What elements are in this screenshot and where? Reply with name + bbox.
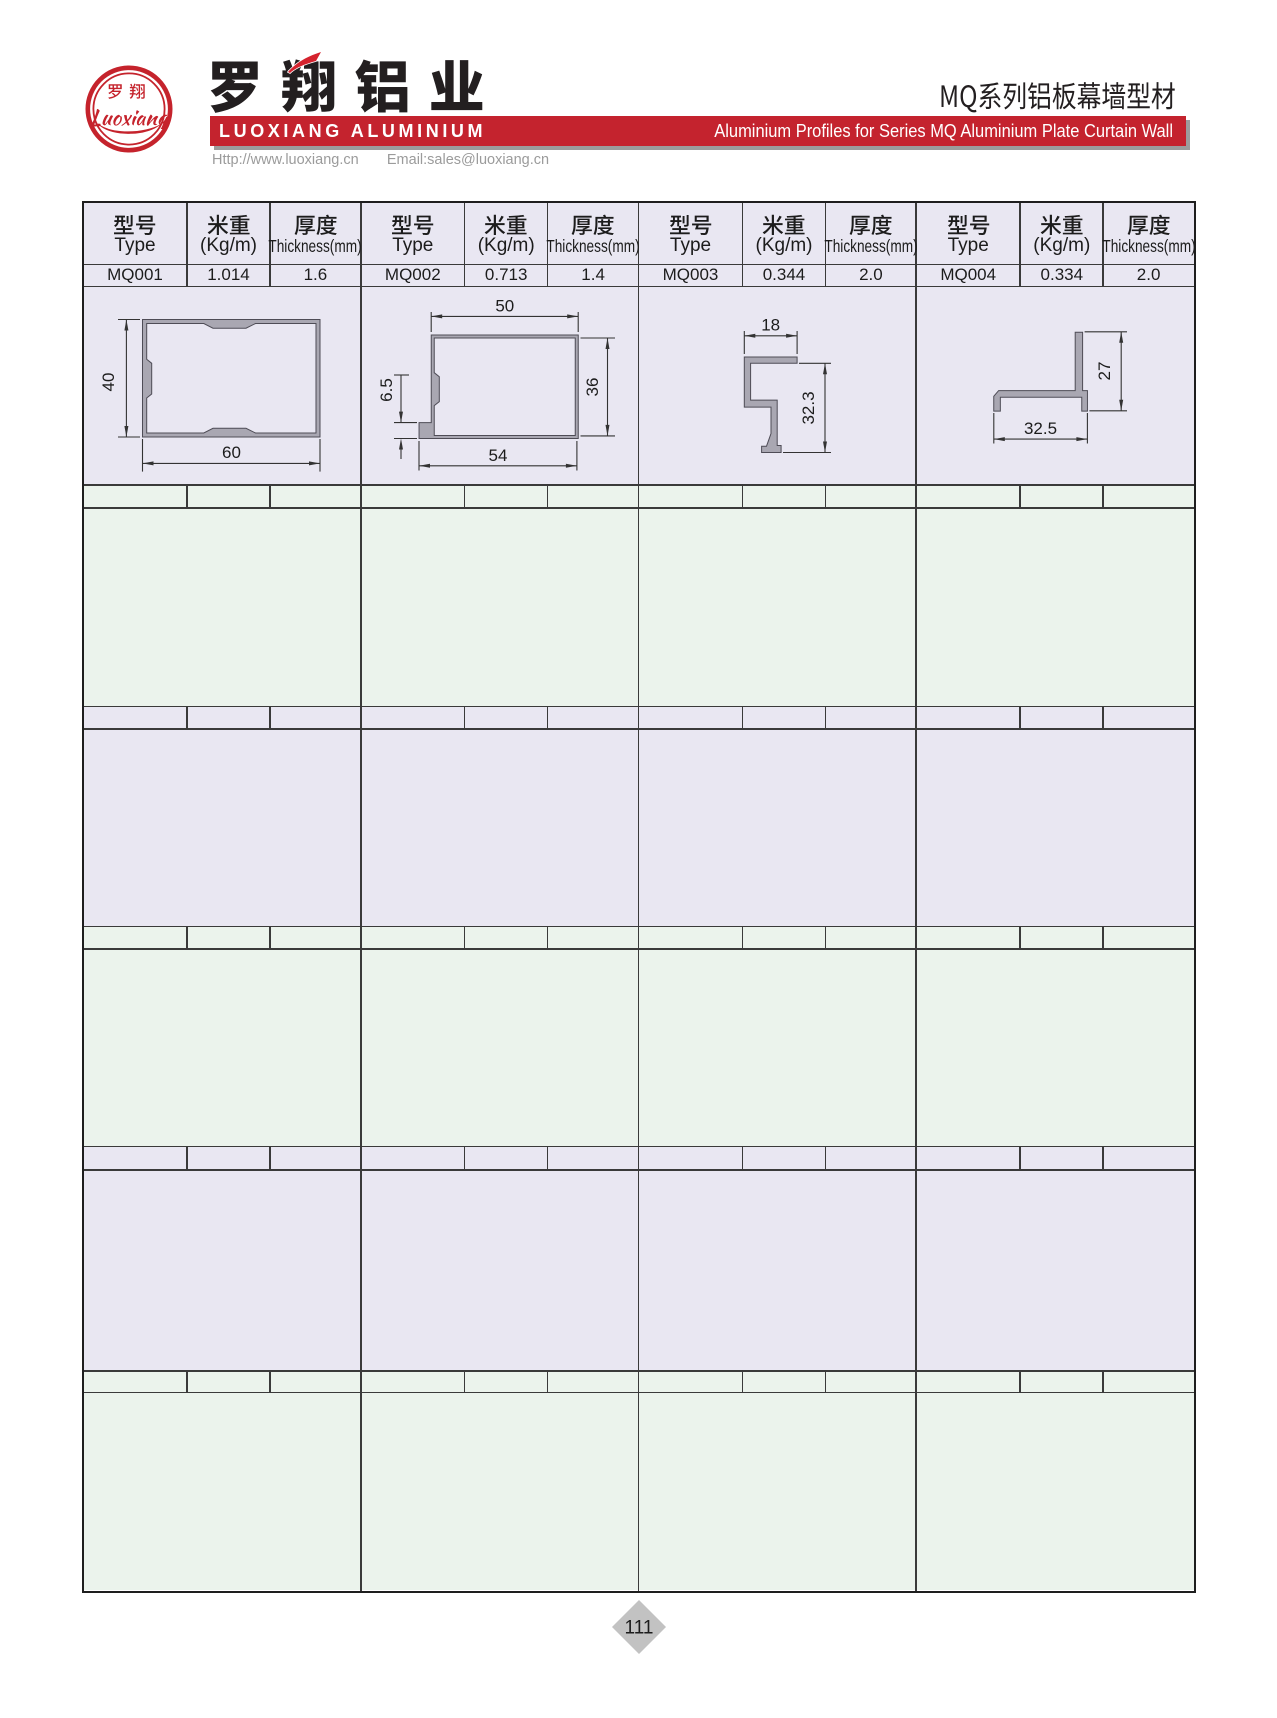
svg-text:36: 36 — [583, 378, 602, 397]
svg-text:60: 60 — [222, 443, 241, 462]
svg-text:40: 40 — [99, 373, 118, 392]
svg-text:6.5: 6.5 — [377, 378, 396, 402]
svg-text:54: 54 — [488, 446, 507, 465]
svg-text:111: 111 — [625, 1618, 654, 1639]
svg-text:32.3: 32.3 — [798, 391, 817, 424]
svg-text:50: 50 — [495, 297, 514, 316]
svg-text:32.5: 32.5 — [1024, 419, 1057, 438]
svg-text:27: 27 — [1095, 362, 1114, 381]
svg-text:18: 18 — [761, 316, 780, 335]
